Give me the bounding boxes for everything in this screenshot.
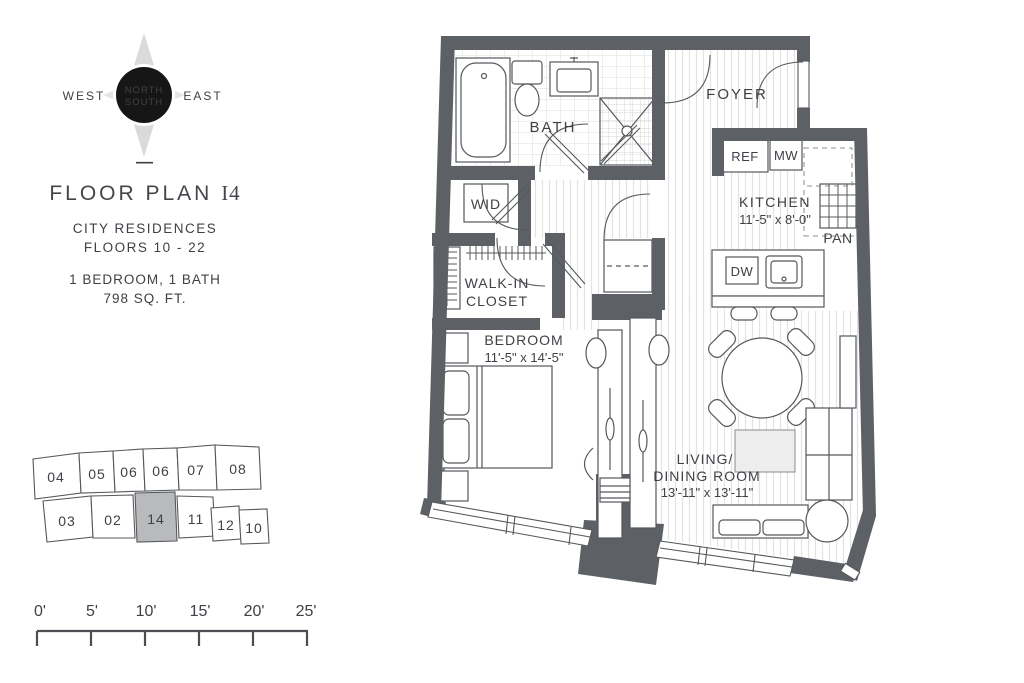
compass-rose: NORTH SOUTH WEST EAST: [63, 33, 223, 157]
floor-plan-sheet: NORTH SOUTH WEST EAST 04 05 06 06 07 08 …: [0, 0, 1024, 683]
media-console-shelf-right: [763, 520, 804, 535]
media-console-shelf-left: [719, 520, 760, 535]
scale-label: 25': [296, 603, 317, 620]
wall-bath-bottom-right: [588, 166, 655, 180]
counter-bar-edge: [712, 296, 824, 307]
walkin-label-line2: CLOSET: [466, 293, 528, 309]
key-unit-label: 10: [245, 520, 263, 536]
pantry-label: PAN: [823, 230, 852, 246]
entry-door-leaf: [798, 61, 809, 108]
scale-label: 10': [136, 603, 157, 620]
wall-hall-bottom-left: [432, 233, 495, 246]
key-unit-label: 06: [152, 463, 170, 479]
kitchen-sink-drain: [782, 277, 786, 281]
wall-wd-right: [518, 180, 531, 246]
floor-plan-page: { "colors": { "wall": "#5d6165", "line":…: [0, 0, 1024, 683]
living-label-line2: DINING ROOM: [653, 468, 760, 484]
wall-foyer-right-upper: [797, 50, 810, 62]
key-unit-label: 03: [58, 513, 76, 529]
wall-sliding-top-stub: [592, 294, 662, 320]
walkin-label-line1: WALK-IN: [465, 275, 530, 291]
wall-walkin-bottom: [432, 318, 540, 330]
bed-pillow-bottom: [443, 419, 469, 463]
compass-north-label: NORTH: [125, 85, 164, 96]
sliding-door-handle-right: [639, 430, 647, 452]
hallway-floor: [530, 180, 652, 238]
key-unit-label: 04: [47, 469, 65, 485]
wall-bath-bottom-left: [441, 166, 535, 180]
key-unit-label: 05: [88, 466, 106, 482]
area-rug: [735, 430, 795, 472]
dishwasher-label: DW: [731, 264, 754, 279]
building-key-plan: 04 05 06 06 07 08 03 02 14 11 12 10: [33, 445, 269, 544]
key-unit-label: 07: [187, 462, 205, 478]
refrigerator-label: REF: [731, 149, 759, 164]
compass-south-label: SOUTH: [125, 97, 163, 108]
sliding-door-pull-left: [586, 338, 606, 368]
bedroom-label: BEDROOM: [484, 332, 563, 348]
bath-label: BATH: [530, 119, 577, 136]
sliding-door-handle-left: [606, 418, 614, 440]
kitchen-label: KITCHEN: [739, 194, 811, 210]
wd-label: WID: [471, 196, 501, 212]
key-unit-label: 12: [217, 517, 235, 533]
scale-bar-line: [37, 631, 308, 646]
microwave-label: MW: [774, 148, 798, 163]
scale-label: 15': [190, 603, 211, 620]
kitchen-dims: 11'-5" x 8'-0": [739, 212, 811, 227]
key-unit-label-highlighted: 14: [147, 511, 165, 527]
compass-west-label: WEST: [63, 89, 106, 103]
console-table: [840, 336, 856, 408]
bar-stool-right: [771, 307, 797, 320]
wall-kitchen-stub: [712, 131, 724, 176]
key-unit-label: 02: [104, 512, 122, 528]
sink-basin: [557, 69, 591, 92]
key-unit-label: 06: [120, 464, 138, 480]
wall-hall-bottom-stub: [545, 233, 565, 246]
scale-bar: 0' 5' 10' 15' 20' 25': [34, 603, 316, 646]
toilet-tank: [512, 61, 542, 84]
wall-top: [441, 36, 810, 50]
floor-plan-drawing: BATH FOYER KITCHEN 11'-5" x 8'-0" WALK-I…: [420, 36, 876, 585]
scale-label: 5': [86, 603, 98, 620]
wall-kitchen-top: [712, 128, 860, 141]
nightstand-bottom: [440, 471, 468, 501]
wall-bath-foyer-divider: [652, 36, 665, 180]
dining-table: [722, 338, 802, 418]
round-side-chair: [806, 500, 848, 542]
tub-drain: [482, 74, 487, 79]
foyer-label: FOYER: [706, 86, 768, 103]
scale-label: 20': [244, 603, 265, 620]
living-label-line1: LIVING/: [677, 451, 734, 467]
key-unit-label: 08: [229, 461, 247, 477]
living-dims: 13'-11" x 13'-11": [661, 485, 754, 500]
bedroom-dims: 11'-5" x 14'-5": [485, 350, 564, 365]
compass-east-label: EAST: [183, 89, 222, 103]
toilet-bowl: [515, 84, 539, 116]
key-unit-label: 11: [188, 511, 205, 527]
bar-stool-left: [731, 307, 757, 320]
bed-pillow-top: [443, 371, 469, 415]
sliding-door-pull-right: [649, 335, 669, 365]
scale-label: 0': [34, 603, 46, 620]
